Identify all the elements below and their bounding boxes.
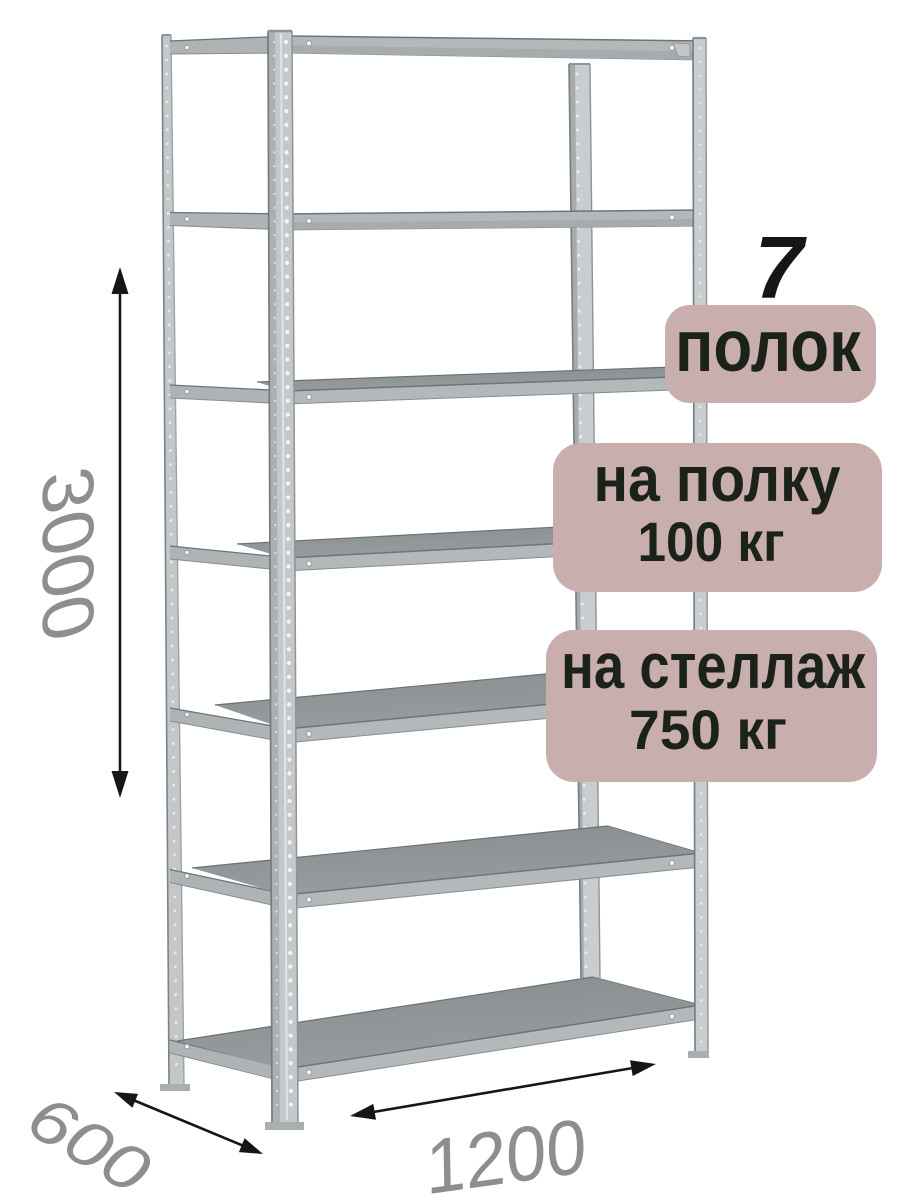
- svg-text:7: 7: [755, 218, 808, 317]
- svg-text:1200: 1200: [425, 1103, 587, 1200]
- svg-text:полок: полок: [675, 306, 861, 387]
- svg-text:на стеллаж: на стеллаж: [561, 630, 866, 702]
- svg-text:600: 600: [16, 1080, 163, 1200]
- svg-text:750 кг: 750 кг: [629, 698, 787, 761]
- svg-text:на полку: на полку: [594, 443, 841, 515]
- svg-text:100 кг: 100 кг: [638, 510, 785, 573]
- svg-text:3000: 3000: [27, 459, 109, 649]
